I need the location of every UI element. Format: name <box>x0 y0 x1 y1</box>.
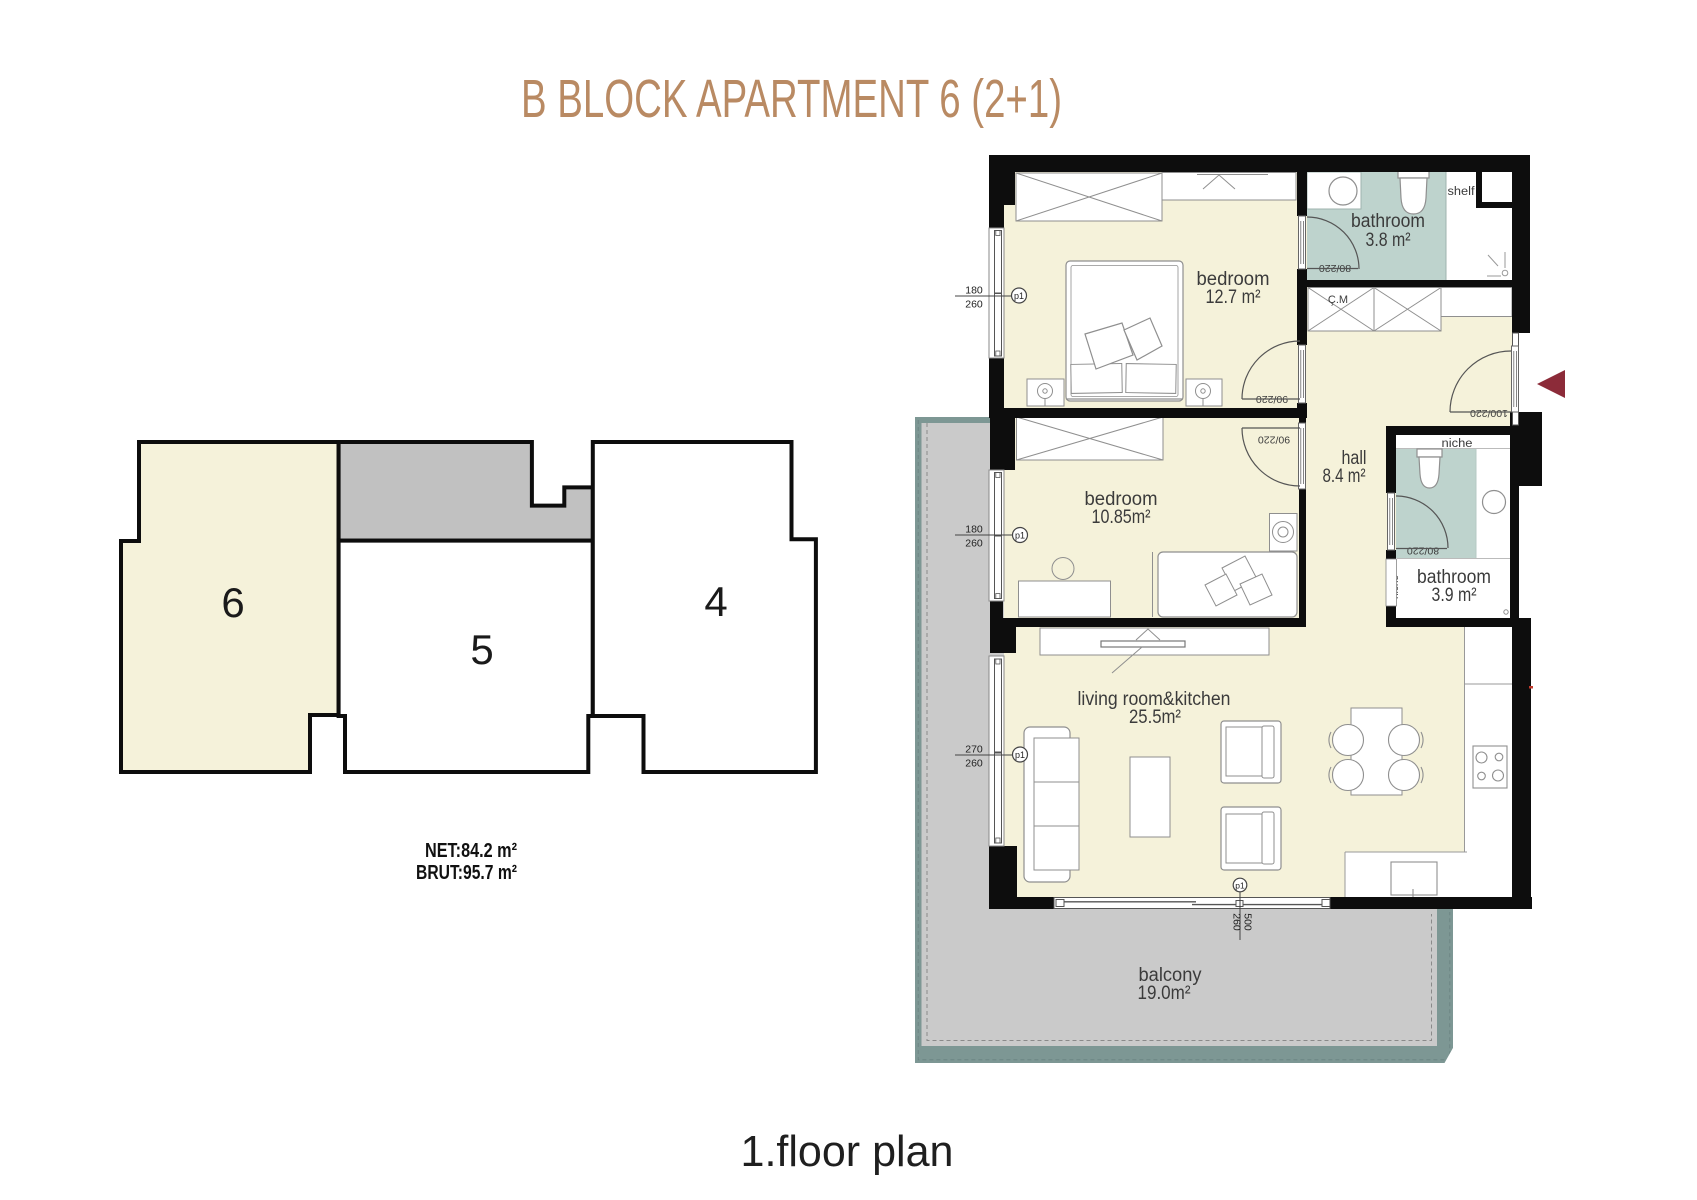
svg-text:3.8 m²: 3.8 m² <box>1366 230 1411 251</box>
svg-text:BRUT:95.7 m²: BRUT:95.7 m² <box>416 862 517 884</box>
svg-text:260: 260 <box>965 538 983 550</box>
svg-text:260: 260 <box>965 758 983 770</box>
svg-text:270: 270 <box>965 744 983 756</box>
svg-text:25.5m²: 25.5m² <box>1129 707 1181 728</box>
svg-text:180: 180 <box>965 285 983 297</box>
svg-text:p1: p1 <box>1014 291 1024 301</box>
svg-text:p1: p1 <box>1235 880 1245 890</box>
svg-text:3.9 m²: 3.9 m² <box>1432 585 1477 606</box>
svg-text:5: 5 <box>470 626 493 673</box>
svg-text:260: 260 <box>1231 913 1243 931</box>
svg-text:100/220: 100/220 <box>1470 407 1508 419</box>
svg-text:1.floor plan: 1.floor plan <box>741 1127 954 1176</box>
svg-text:p1: p1 <box>1015 531 1025 541</box>
svg-text:4: 4 <box>704 578 727 625</box>
svg-text:NET:84.2 m²: NET:84.2 m² <box>425 840 517 862</box>
svg-text:180: 180 <box>965 524 983 536</box>
svg-text:shelf: shelf <box>1448 186 1476 198</box>
svg-text:19.0m²: 19.0m² <box>1138 983 1191 1004</box>
svg-text:10.85m²: 10.85m² <box>1092 507 1151 528</box>
svg-text:B BLOCK APARTMENT 6 (2+1): B BLOCK APARTMENT 6 (2+1) <box>521 69 1062 129</box>
svg-text:bathroom: bathroom <box>1351 211 1425 232</box>
svg-text:12.7 m²: 12.7 m² <box>1206 287 1261 308</box>
svg-text:8.4 m²: 8.4 m² <box>1323 466 1366 487</box>
svg-text:90/220: 90/220 <box>1258 434 1290 446</box>
svg-text:Ç.M: Ç.M <box>1328 294 1348 306</box>
svg-text:p1: p1 <box>1015 750 1025 760</box>
svg-text:6: 6 <box>221 579 244 626</box>
svg-text:260: 260 <box>965 299 983 311</box>
svg-text:niche: niche <box>1442 438 1473 450</box>
svg-text:80/220: 80/220 <box>1407 545 1439 557</box>
